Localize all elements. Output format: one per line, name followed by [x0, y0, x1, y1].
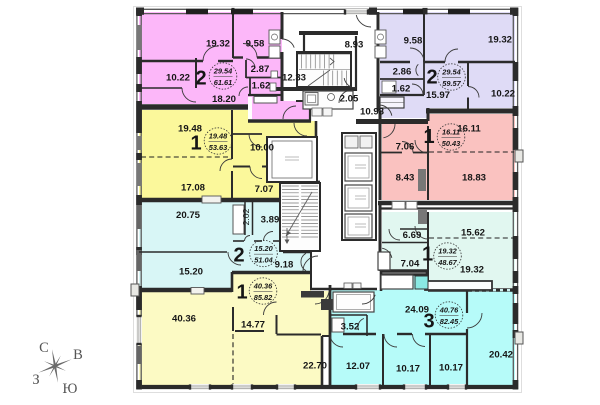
- svg-text:3.52: 3.52: [341, 322, 360, 333]
- svg-text:15.97: 15.97: [426, 90, 450, 101]
- svg-text:10.17: 10.17: [396, 364, 420, 375]
- svg-text:50.43: 50.43: [442, 139, 461, 148]
- svg-text:8.93: 8.93: [345, 40, 364, 51]
- svg-text:2.87: 2.87: [251, 64, 270, 75]
- svg-text:20.75: 20.75: [176, 210, 201, 221]
- svg-text:1: 1: [190, 133, 201, 155]
- svg-text:3: 3: [423, 311, 434, 333]
- svg-text:12.33: 12.33: [282, 73, 306, 84]
- svg-text:З: З: [32, 372, 39, 388]
- svg-text:12.07: 12.07: [346, 361, 370, 372]
- svg-text:85.82: 85.82: [254, 293, 273, 302]
- svg-text:1: 1: [423, 126, 434, 148]
- svg-text:40.36: 40.36: [253, 282, 273, 291]
- svg-text:15.20: 15.20: [254, 244, 273, 253]
- svg-text:7.06: 7.06: [396, 142, 415, 153]
- svg-text:19.32: 19.32: [438, 247, 457, 256]
- svg-text:7.04: 7.04: [401, 259, 420, 270]
- svg-text:14.77: 14.77: [241, 320, 265, 331]
- svg-text:6.69: 6.69: [403, 230, 422, 241]
- svg-text:10.00: 10.00: [250, 143, 274, 154]
- svg-text:59.57: 59.57: [442, 79, 461, 88]
- svg-text:10.17: 10.17: [439, 363, 463, 374]
- svg-text:18.20: 18.20: [212, 94, 236, 105]
- svg-text:15.62: 15.62: [461, 228, 485, 239]
- svg-text:19.32: 19.32: [488, 35, 512, 46]
- svg-text:19.32: 19.32: [206, 39, 230, 50]
- svg-text:2: 2: [195, 68, 206, 90]
- svg-text:20.42: 20.42: [489, 350, 513, 361]
- svg-text:40.36: 40.36: [172, 314, 196, 325]
- svg-text:48.67: 48.67: [437, 258, 457, 267]
- svg-text:61.61: 61.61: [214, 78, 233, 87]
- svg-text:1.62: 1.62: [392, 84, 411, 95]
- svg-text:29.54: 29.54: [441, 68, 461, 77]
- svg-text:1: 1: [236, 282, 247, 304]
- svg-text:7.07: 7.07: [255, 184, 274, 195]
- svg-text:22.70: 22.70: [303, 361, 327, 372]
- svg-text:16.11: 16.11: [442, 128, 460, 137]
- svg-text:53.63: 53.63: [209, 143, 228, 152]
- svg-text:10.22: 10.22: [166, 73, 190, 84]
- svg-text:Ю: Ю: [63, 381, 78, 397]
- svg-text:С: С: [39, 340, 49, 356]
- svg-text:1.62: 1.62: [252, 81, 271, 92]
- svg-text:2: 2: [426, 67, 437, 89]
- svg-text:29.54: 29.54: [213, 67, 233, 76]
- svg-text:В: В: [73, 347, 83, 363]
- svg-text:17.08: 17.08: [181, 183, 206, 194]
- svg-text:10.98: 10.98: [360, 107, 385, 118]
- svg-text:16.11: 16.11: [457, 124, 481, 135]
- svg-text:19.48: 19.48: [209, 132, 228, 141]
- svg-text:2.05: 2.05: [340, 94, 359, 105]
- svg-text:9.58: 9.58: [404, 36, 423, 47]
- svg-text:51.04: 51.04: [254, 256, 273, 265]
- svg-text:15.20: 15.20: [179, 267, 203, 278]
- svg-text:2: 2: [233, 245, 244, 267]
- svg-text:1: 1: [422, 244, 433, 266]
- svg-text:2.86: 2.86: [393, 67, 412, 78]
- svg-text:9.18: 9.18: [275, 260, 294, 271]
- svg-text:18.83: 18.83: [462, 173, 486, 184]
- svg-text:9.58: 9.58: [246, 39, 265, 50]
- svg-text:10.22: 10.22: [491, 89, 515, 100]
- svg-text:40.76: 40.76: [439, 306, 459, 315]
- svg-text:82.45: 82.45: [440, 317, 459, 326]
- svg-text:2.02: 2.02: [241, 208, 251, 225]
- svg-text:8.43: 8.43: [396, 173, 415, 184]
- svg-text:3.89: 3.89: [261, 215, 280, 226]
- svg-text:19.32: 19.32: [460, 265, 484, 276]
